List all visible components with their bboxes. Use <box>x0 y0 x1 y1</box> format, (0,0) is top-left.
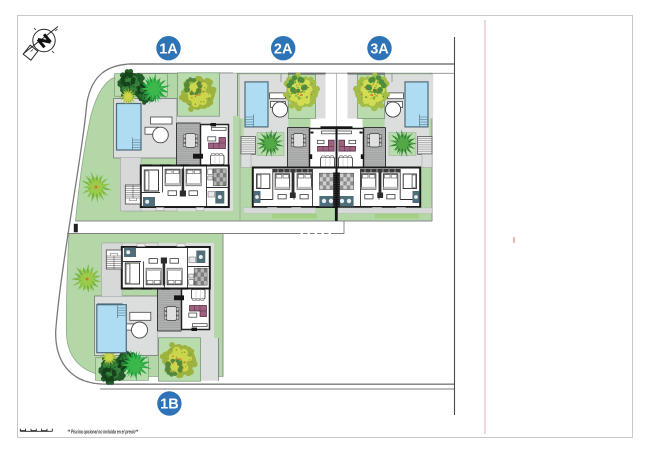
svg-text:3A: 3A <box>370 41 389 57</box>
svg-text:** Piscina opcional no incluid: ** Piscina opcional no incluida en el pr… <box>68 430 139 436</box>
svg-text:1A: 1A <box>159 41 178 57</box>
svg-text:2A: 2A <box>274 41 293 57</box>
svg-text:1B: 1B <box>160 397 179 413</box>
